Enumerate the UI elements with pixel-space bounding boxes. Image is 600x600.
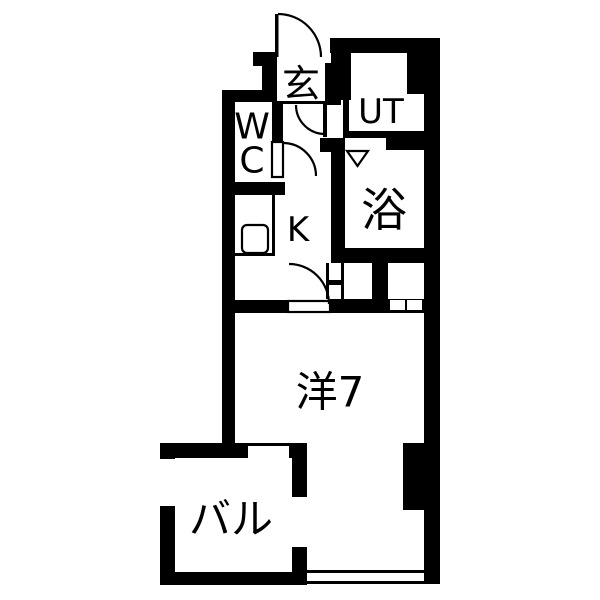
mainroom-door-threshold — [288, 301, 330, 312]
south-window-line-top — [307, 570, 424, 573]
closet-tick — [326, 280, 344, 285]
entrance-door-leaf — [275, 14, 279, 57]
main-room-label: 洋7 — [296, 368, 365, 417]
wall-pillar — [403, 443, 440, 510]
closet-door-left — [390, 300, 405, 310]
floor-plan: 玄 UT W C 浴 K 洋7 バル — [0, 0, 600, 600]
wall-left — [222, 90, 235, 458]
utility-label: UT — [358, 92, 404, 132]
balcony-door-opening — [292, 497, 307, 547]
wall-wc-bottom — [235, 182, 285, 195]
wall-ut-left-chunk — [331, 52, 351, 100]
toilet-label-c: C — [239, 141, 264, 182]
balcony-label: バル — [189, 495, 273, 544]
kitchen-label: K — [287, 210, 311, 250]
balcony-window — [248, 446, 289, 458]
wall-hall-stub — [320, 138, 345, 152]
counter-right-line — [272, 195, 275, 256]
wall-genkan-left-cap — [253, 52, 265, 66]
genkan-label: 玄 — [282, 62, 320, 106]
wc-door-leaf — [272, 142, 283, 177]
wall-bath-bottom — [331, 248, 440, 263]
wall-top — [330, 38, 440, 53]
wall-bath-left — [331, 140, 345, 263]
wall-balcony-bottom — [160, 572, 307, 585]
south-window-line-bottom — [307, 581, 424, 584]
bath-door-opening — [345, 138, 386, 150]
wall-wc-right — [272, 102, 283, 142]
bath-label: 浴 — [361, 183, 407, 237]
wall-closet-bottom — [330, 299, 440, 313]
wall-closet-divider — [372, 263, 388, 299]
balcony-left-opening — [160, 459, 175, 506]
hall-door-leaf — [323, 104, 327, 137]
closet-door-right — [407, 300, 422, 310]
kitchen-sink — [242, 225, 268, 253]
